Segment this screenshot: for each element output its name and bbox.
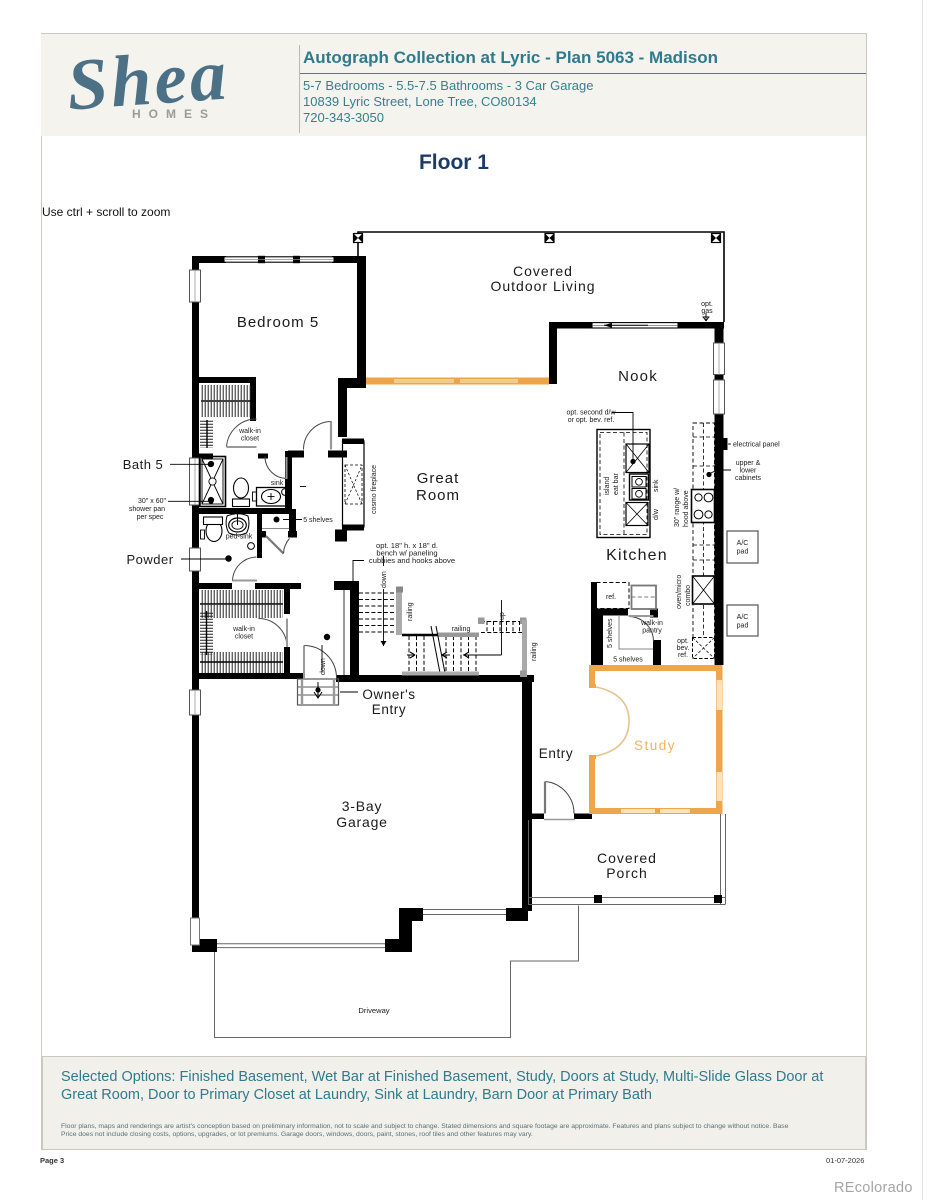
- svg-text:up: up: [499, 612, 506, 620]
- svg-text:pad: pad: [737, 623, 749, 630]
- svg-text:A/C: A/C: [737, 540, 749, 547]
- svg-text:5 shelves: 5 shelves: [607, 618, 614, 648]
- svg-text:Porch: Porch: [606, 865, 648, 881]
- svg-text:Outdoor Living: Outdoor Living: [490, 278, 595, 294]
- svg-text:bev.: bev.: [677, 645, 690, 652]
- svg-text:Kitchen: Kitchen: [606, 547, 668, 564]
- svg-text:Garage: Garage: [336, 814, 388, 830]
- svg-text:opt.: opt.: [677, 638, 689, 645]
- svg-text:pad: pad: [737, 549, 749, 556]
- svg-text:sink: sink: [653, 479, 660, 492]
- svg-text:sink: sink: [271, 480, 284, 487]
- svg-text:oven/micro: oven/micro: [676, 575, 683, 609]
- svg-text:railing: railing: [407, 602, 414, 621]
- svg-text:walk-in: walk-in: [232, 626, 255, 633]
- svg-text:upper &: upper &: [736, 460, 761, 467]
- svg-text:3-Bay: 3-Bay: [342, 798, 383, 814]
- svg-text:d/w: d/w: [653, 508, 660, 520]
- svg-text:railing: railing: [452, 626, 471, 633]
- svg-text:closet: closet: [235, 634, 253, 641]
- svg-text:Covered: Covered: [513, 263, 573, 279]
- svg-text:or opt. bev. ref.: or opt. bev. ref.: [568, 417, 615, 424]
- svg-text:Nook: Nook: [618, 368, 658, 385]
- svg-text:opt.: opt.: [701, 301, 713, 308]
- svg-text:ref.: ref.: [606, 594, 616, 601]
- svg-text:closet: closet: [241, 436, 259, 443]
- svg-text:Great: Great: [417, 470, 460, 487]
- svg-text:opt. second d/w: opt. second d/w: [566, 410, 616, 417]
- svg-text:Room: Room: [416, 487, 460, 504]
- svg-text:cubbies and hooks above: cubbies and hooks above: [369, 556, 455, 565]
- svg-text:5 shelves: 5 shelves: [613, 657, 643, 664]
- svg-text:Bath 5: Bath 5: [123, 457, 164, 472]
- svg-text:ref.: ref.: [678, 652, 688, 659]
- svg-text:30" x 60": 30" x 60": [138, 498, 166, 505]
- svg-text:Entry: Entry: [372, 702, 407, 717]
- svg-text:Bedroom 5: Bedroom 5: [237, 314, 319, 331]
- svg-text:down: down: [381, 571, 388, 588]
- svg-text:shower pan: shower pan: [129, 506, 165, 513]
- svg-text:island: island: [604, 477, 611, 495]
- svg-text:hood above: hood above: [683, 490, 690, 527]
- svg-text:cosmo fireplace: cosmo fireplace: [371, 465, 378, 514]
- svg-text:Owner's: Owner's: [362, 687, 415, 702]
- svg-text:walk-in: walk-in: [238, 428, 261, 435]
- svg-text:Entry: Entry: [539, 746, 574, 761]
- svg-text:5 shelves: 5 shelves: [303, 517, 333, 524]
- svg-text:per spec: per spec: [137, 514, 164, 521]
- svg-text:Driveway: Driveway: [358, 1006, 389, 1015]
- svg-text:Study: Study: [634, 738, 676, 753]
- svg-text:cabinets: cabinets: [735, 475, 762, 482]
- svg-text:Covered: Covered: [597, 850, 657, 866]
- svg-text:A/C: A/C: [737, 614, 749, 621]
- svg-text:eat bar: eat bar: [613, 473, 620, 495]
- svg-text:pantry: pantry: [642, 628, 662, 635]
- svg-text:down: down: [320, 658, 327, 675]
- svg-text:combo: combo: [685, 585, 692, 606]
- svg-text:gas: gas: [701, 308, 713, 315]
- svg-text:ped-sink: ped-sink: [226, 534, 253, 541]
- svg-text:30" range w/: 30" range w/: [674, 488, 681, 527]
- svg-text:lower: lower: [740, 468, 757, 475]
- svg-text:walk-in: walk-in: [640, 620, 663, 627]
- svg-text:Powder: Powder: [126, 552, 173, 567]
- svg-text:railing: railing: [531, 642, 538, 661]
- svg-text:electrical panel: electrical panel: [733, 442, 780, 449]
